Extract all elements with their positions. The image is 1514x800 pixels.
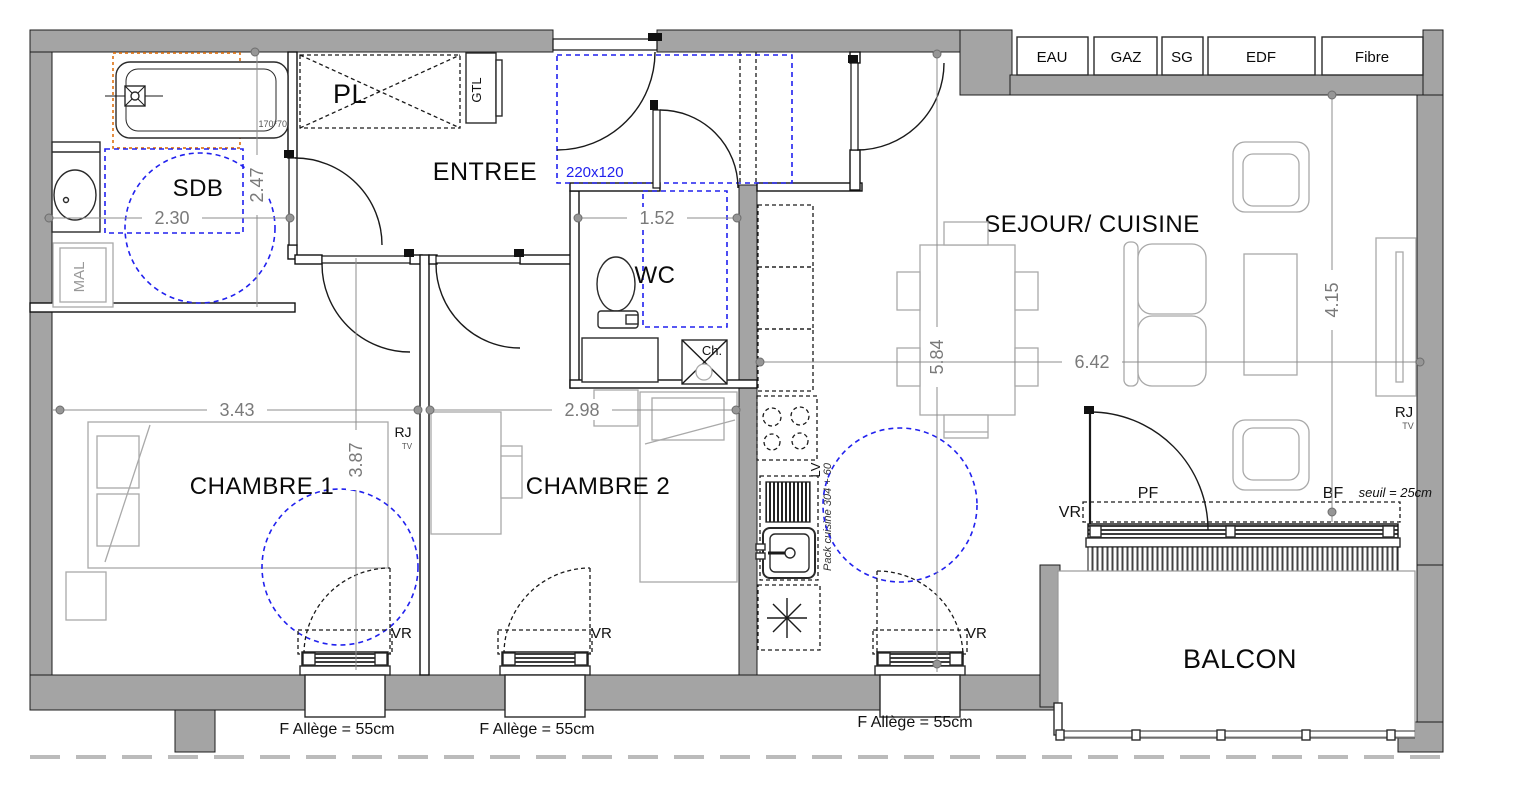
chambre1-door <box>322 249 414 352</box>
water-heater: Ch. <box>682 340 727 384</box>
utility-sg-label: SG <box>1171 49 1193 66</box>
bay-window: VR PF BF seuil = 25cm <box>1059 485 1432 571</box>
chambre2-door <box>436 249 524 348</box>
floor-plan: EAU GAZ SG EDF Fibre <box>0 0 1514 800</box>
bathtub-size-label: 170*70 <box>258 119 287 129</box>
dim-sejour-depth: 4.15 <box>1322 282 1342 317</box>
desk-chambre2 <box>431 412 522 534</box>
rj-tv-sejour-sub: TV <box>1402 421 1414 431</box>
gtl-box: GTL <box>466 53 502 123</box>
dining-table <box>897 222 1038 438</box>
chambre1-label: CHAMBRE 1 <box>190 473 335 500</box>
chambre2-label: CHAMBRE 2 <box>526 473 671 500</box>
dishwasher-label: LV <box>808 462 823 477</box>
washing-machine: MAL <box>53 243 113 307</box>
sill-kitchen-label: F Allège = 55cm <box>857 714 972 731</box>
wc-label: WC <box>635 262 676 289</box>
sejour-door <box>848 55 944 150</box>
kitchen-sink <box>756 476 818 580</box>
seuil-label: seuil = 25cm <box>1359 485 1433 500</box>
balcon-label: BALCON <box>1183 644 1297 674</box>
entree-label: ENTREE <box>433 158 537 186</box>
entry-clearance-label: 220x120 <box>566 164 624 181</box>
vr-chambre1-label: VR <box>391 625 412 642</box>
sofa <box>1124 242 1206 386</box>
armchair-top <box>1233 142 1309 212</box>
wc-door <box>650 100 738 188</box>
balcony: BALCON <box>1054 571 1415 740</box>
entrance-door <box>553 33 662 150</box>
dim-sdb-width: 2.30 <box>154 208 189 228</box>
fridge-slot <box>758 585 820 650</box>
room-pl: PL GTL <box>300 53 502 128</box>
utility-fibre-label: Fibre <box>1355 49 1389 66</box>
bed-chambre1 <box>66 422 388 620</box>
pl-label: PL <box>333 79 367 109</box>
armchair-bottom <box>1233 420 1309 490</box>
rj-tv-chambre1-label: RJ <box>394 424 411 440</box>
kitchen-turning-circle <box>823 428 977 582</box>
dim-sdb-height: 2.47 <box>247 167 267 202</box>
sill-chambre1-label: F Allège = 55cm <box>279 721 394 738</box>
sill-chambre2-label: F Allège = 55cm <box>479 721 594 738</box>
water-heater-label: Ch. <box>702 343 722 358</box>
cooktop <box>757 396 817 460</box>
pf-label: PF <box>1138 485 1159 502</box>
tv-unit <box>1376 238 1416 396</box>
dim-chambre2-width: 2.98 <box>564 400 599 420</box>
dim-sejour-height: 5.84 <box>927 339 947 374</box>
washing-machine-label: MAL <box>71 262 88 293</box>
windows: VR F Allège = 55cm VR F Allège = 55cm <box>279 568 987 738</box>
vr-sejour-label: VR <box>1059 504 1081 521</box>
dim-wc-width: 1.52 <box>639 208 674 228</box>
sejour-label: SEJOUR/ CUISINE <box>984 211 1200 238</box>
window-chambre2: VR F Allège = 55cm <box>479 568 612 738</box>
floor-plan-canvas: EAU GAZ SG EDF Fibre <box>0 0 1514 800</box>
utility-boxes: EAU GAZ SG EDF Fibre <box>1017 37 1423 75</box>
gtl-label: GTL <box>469 77 484 102</box>
utility-edf-label: EDF <box>1246 49 1276 66</box>
dim-chambre1-width: 3.43 <box>219 400 254 420</box>
vr-chambre2-label: VR <box>591 625 612 642</box>
rj-tv-chambre1-sub: TV <box>402 442 413 451</box>
window-chambre1: VR F Allège = 55cm <box>279 568 412 738</box>
bf-label: BF <box>1323 485 1344 502</box>
technical-dashed-lines <box>740 52 756 183</box>
sdb-label: SDB <box>173 175 224 202</box>
vr-kitchen-label: VR <box>966 625 987 642</box>
rj-tv-sejour-label: RJ <box>1395 404 1413 421</box>
sdb-door <box>284 150 382 245</box>
balcony-door <box>1084 406 1208 530</box>
utility-eau-label: EAU <box>1037 49 1068 66</box>
dim-chambre1-height: 3.87 <box>346 442 366 477</box>
dim-sejour-width: 6.42 <box>1074 352 1109 372</box>
utility-gaz-label: GAZ <box>1111 49 1142 66</box>
coffee-table <box>1244 254 1297 375</box>
